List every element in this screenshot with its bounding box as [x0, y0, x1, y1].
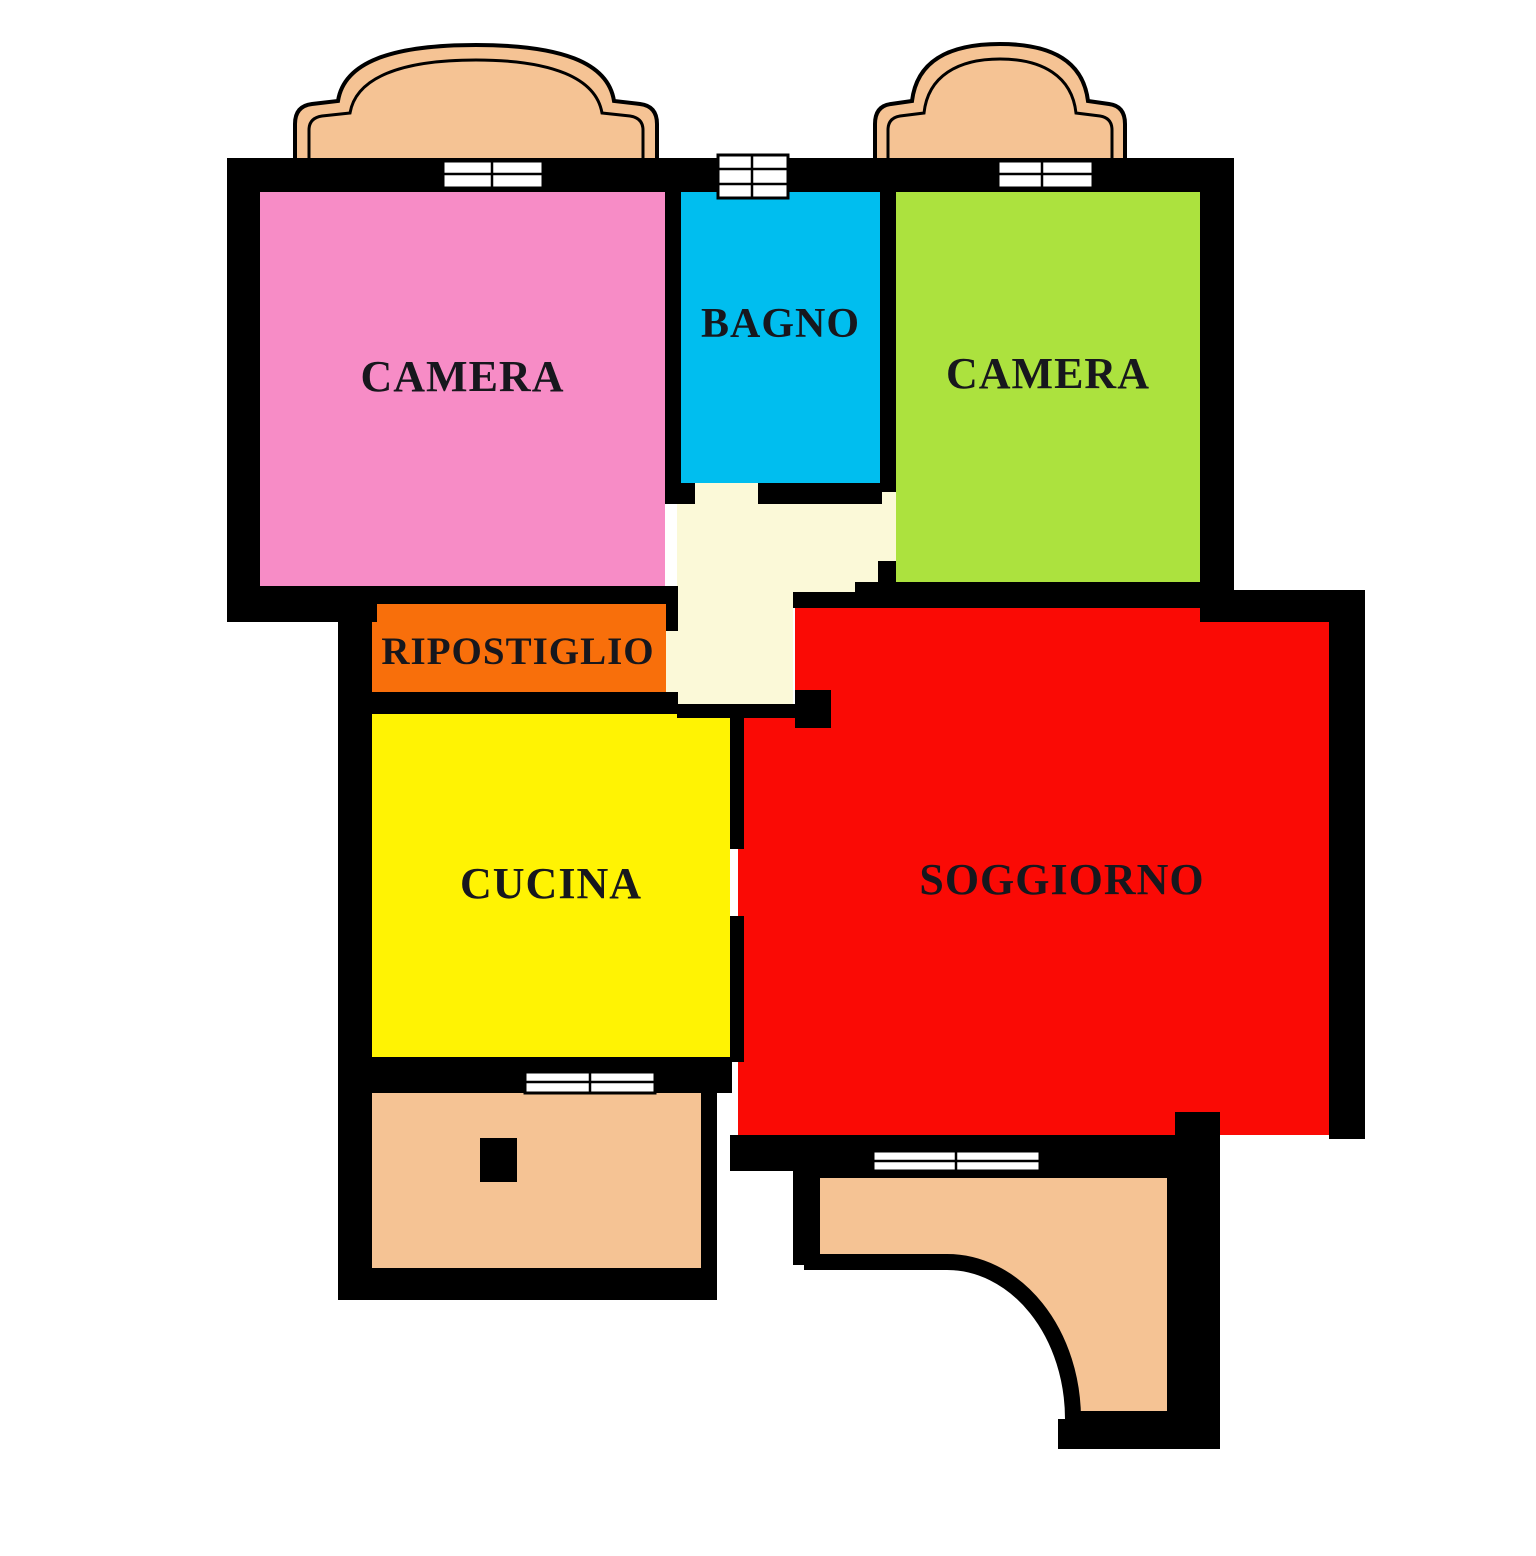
- wall-bagno-camera-right: [880, 158, 896, 492]
- wall-soggiorno-top: [793, 592, 1203, 608]
- hallway-lower: [666, 592, 793, 704]
- wall-right-upper-outer: [1200, 158, 1234, 622]
- pillar-balcony-left: [480, 1138, 517, 1182]
- window-soggiorno: [873, 1151, 1040, 1171]
- window-camera-right: [998, 161, 1093, 188]
- wall-cucina-soggiorno-lower: [730, 916, 744, 1062]
- label-bagno: BAGNO: [681, 303, 880, 345]
- balcony-top-right: [875, 44, 1125, 166]
- wall-hall-ripostiglio-lower-stub: [666, 692, 678, 714]
- label-soggiorno: SOGGIORNO: [795, 858, 1329, 902]
- wall-corner-pillar: [795, 690, 831, 728]
- wall-balcony-right-right: [1175, 1112, 1220, 1449]
- label-camera-left: CAMERA: [260, 355, 665, 399]
- balcony-top-left-shape: [295, 45, 657, 166]
- wall-cucina-soggiorno-upper: [730, 714, 744, 849]
- window-camera-left: [443, 161, 543, 188]
- wall-left-upper: [227, 158, 260, 622]
- wall-ripostiglio-top: [340, 586, 670, 604]
- wall-balcony-right-bottom: [1058, 1419, 1220, 1449]
- balcony-top-right-shape: [875, 44, 1125, 166]
- wall-soggiorno-bottom-left: [730, 1135, 795, 1171]
- balcony-bottom-left: [372, 1093, 701, 1268]
- wall-soggiorno-right-outer: [1329, 590, 1365, 1139]
- label-camera-right: CAMERA: [896, 352, 1200, 396]
- wall-ripostiglio-bottom: [340, 692, 672, 714]
- label-cucina: CUCINA: [372, 862, 730, 906]
- wall-bagno-bottom-right: [758, 483, 882, 504]
- wall-balcony-right-left: [793, 1155, 812, 1265]
- wall-bagno-bottom-left-stub: [665, 483, 695, 504]
- wall-balcony-left-bottom: [338, 1268, 717, 1300]
- wall-left-lower-outer: [338, 586, 372, 1300]
- balcony-bottom-right: [812, 1170, 1175, 1419]
- wall-camera-bagno: [665, 192, 681, 486]
- floor-plan: CAMERA BAGNO CAMERA RIPOSTIGLIO CUCINA S…: [0, 0, 1536, 1556]
- balcony-top-left: [295, 45, 657, 166]
- label-ripostiglio: RIPOSTIGLIO: [368, 632, 668, 671]
- wall-hall-ripostiglio-upper-stub: [666, 586, 678, 631]
- floor-plan-drawing: [0, 0, 1536, 1556]
- window-bagno: [718, 155, 788, 198]
- window-cucina: [525, 1072, 655, 1093]
- wall-balcony-left-right: [701, 1093, 717, 1268]
